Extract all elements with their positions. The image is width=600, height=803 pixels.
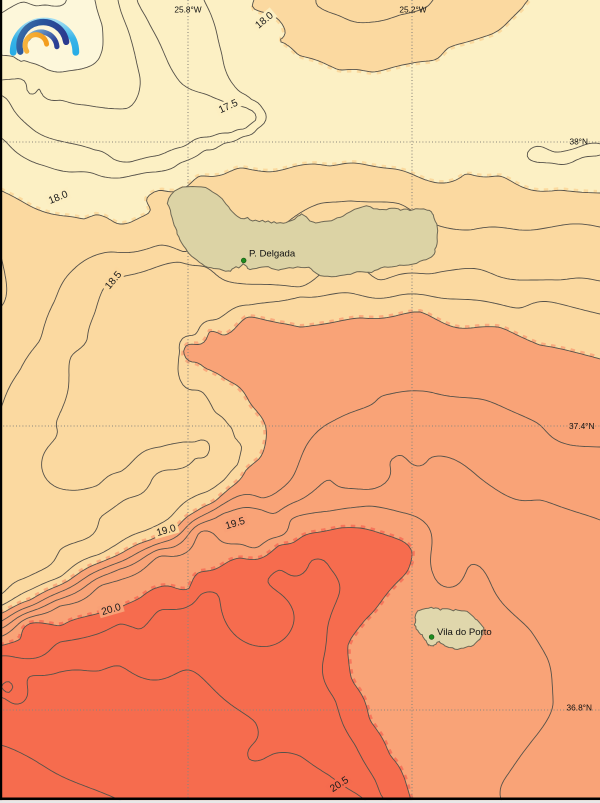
svg-text:Vila do Porto: Vila do Porto [437,627,492,638]
svg-text:P. Delgada: P. Delgada [249,249,296,260]
svg-text:37.4°N: 37.4°N [569,421,594,431]
svg-text:25.8°W: 25.8°W [174,5,201,15]
svg-text:25.2°W: 25.2°W [399,5,426,15]
svg-text:36.8°N: 36.8°N [567,703,592,713]
svg-text:38°N: 38°N [569,137,588,147]
